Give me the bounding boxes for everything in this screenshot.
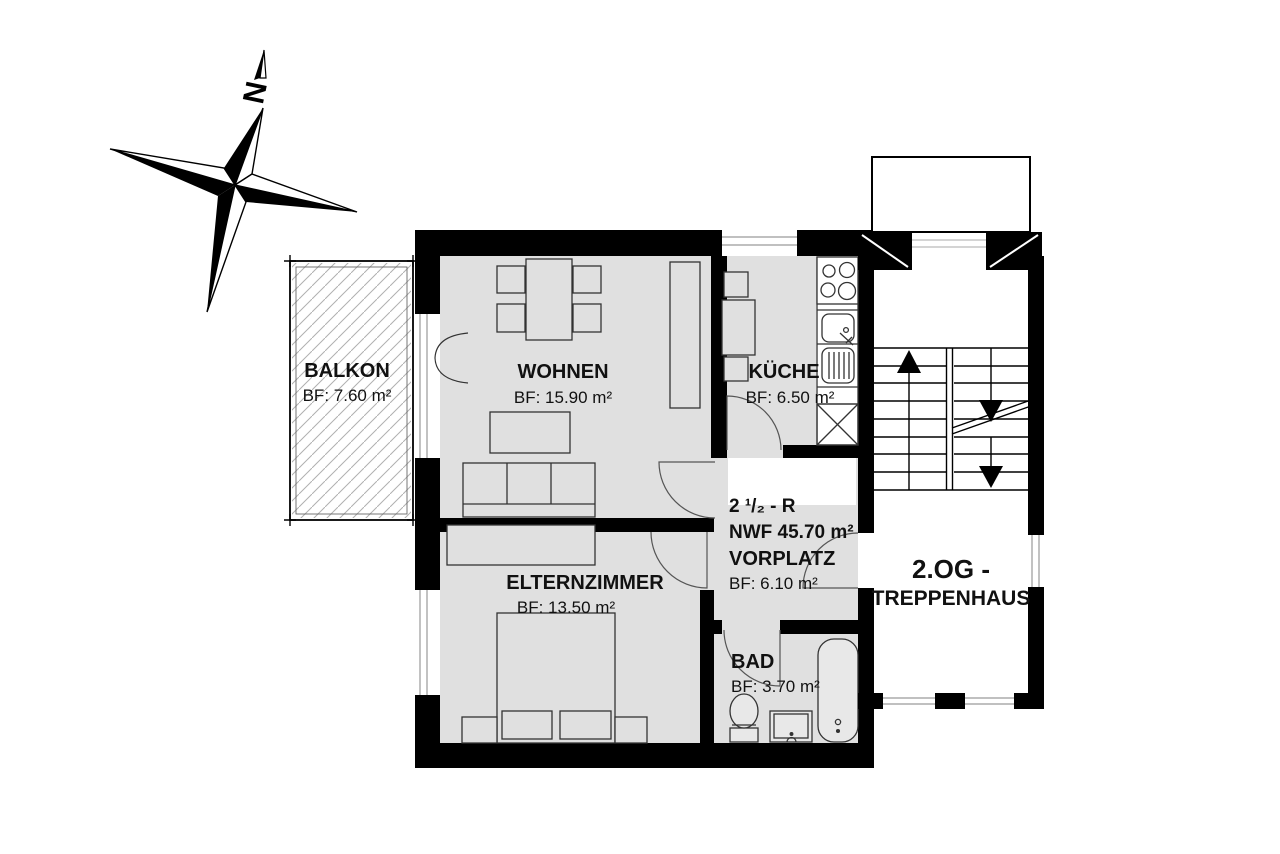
toilet-icon	[730, 694, 758, 742]
pillow	[502, 711, 552, 739]
sofa	[463, 463, 595, 517]
chair	[724, 357, 748, 381]
staircase	[858, 157, 1044, 709]
washbasin-icon	[770, 711, 812, 742]
elternzimmer-label: ELTERNZIMMER	[506, 572, 664, 594]
stair-treads	[874, 348, 1028, 490]
chair	[724, 272, 748, 297]
kitchen-fixtures	[817, 257, 858, 445]
chair	[497, 266, 525, 293]
stair-bay	[872, 157, 1030, 232]
unit-type-label: 2 ¹/₂ - R	[729, 496, 796, 517]
chair	[573, 266, 601, 293]
staircase-floor-label: 2.OG -	[912, 554, 990, 584]
kueche-area: BF: 6.50 m²	[746, 388, 835, 407]
bathtub-icon	[818, 639, 858, 742]
compass-north-label: N	[237, 79, 274, 107]
floor-plan-page: N	[0, 0, 1280, 854]
balkon-label: BALKON	[304, 360, 390, 382]
stair-up-arrow-icon	[897, 350, 921, 373]
vorplatz-label: VORPLATZ	[729, 548, 835, 570]
stove-icon	[817, 257, 858, 304]
wohnen-label: WOHNEN	[517, 361, 608, 383]
kitchen-table	[722, 300, 755, 355]
pillow	[560, 711, 611, 739]
staircase-name-label: TREPPENHAUS	[872, 587, 1031, 610]
unit-nwf-label: NWF 45.70 m²	[729, 522, 854, 543]
vorplatz-area: BF: 6.10 m²	[729, 574, 818, 593]
balkon-area: BF: 7.60 m²	[303, 386, 392, 405]
stair-down-arrow-icon	[979, 466, 1003, 488]
wohnen-area: BF: 15.90 m²	[514, 388, 613, 407]
bad-label: BAD	[731, 651, 774, 673]
shelf-cabinet	[670, 262, 700, 408]
chair	[497, 304, 525, 332]
dining-table	[526, 259, 572, 340]
coffee-table	[490, 412, 570, 453]
bad-area: BF: 3.70 m²	[731, 677, 820, 696]
wardrobe	[447, 525, 595, 565]
kueche-label: KÜCHE	[748, 360, 819, 383]
chair	[573, 304, 601, 332]
nightstand	[462, 717, 497, 743]
nightstand	[615, 717, 647, 743]
elternzimmer-area: BF: 13.50 m²	[517, 598, 616, 617]
floor-plan-drawing: N	[0, 0, 1280, 854]
